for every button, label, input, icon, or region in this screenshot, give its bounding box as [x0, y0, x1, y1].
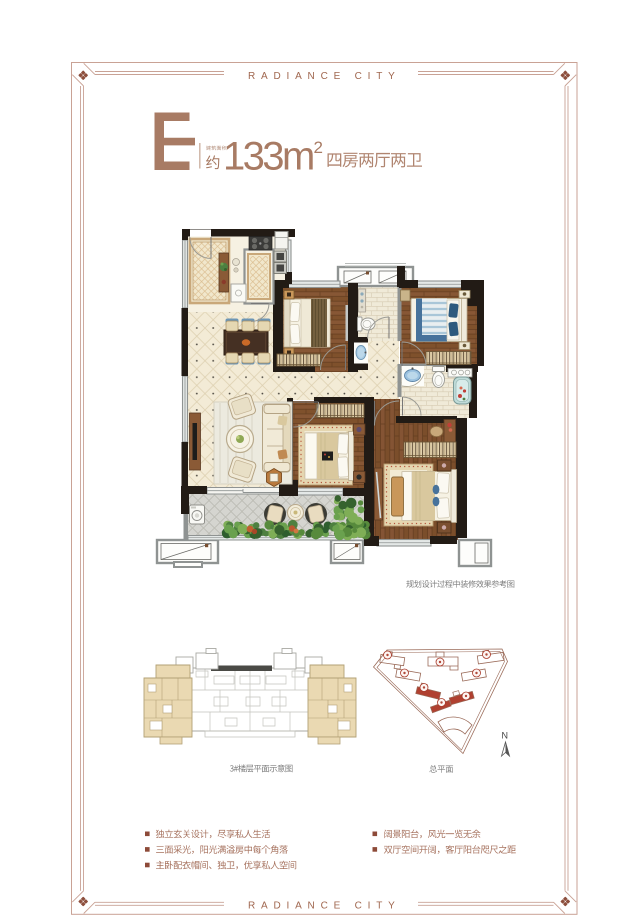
- svg-text:RADIANCE CITY: RADIANCE CITY: [248, 71, 401, 82]
- svg-text:133m: 133m: [223, 134, 313, 178]
- svg-text:N: N: [502, 731, 509, 741]
- svg-text:2: 2: [314, 138, 323, 157]
- svg-text:RADIANCE CITY: RADIANCE CITY: [248, 901, 401, 912]
